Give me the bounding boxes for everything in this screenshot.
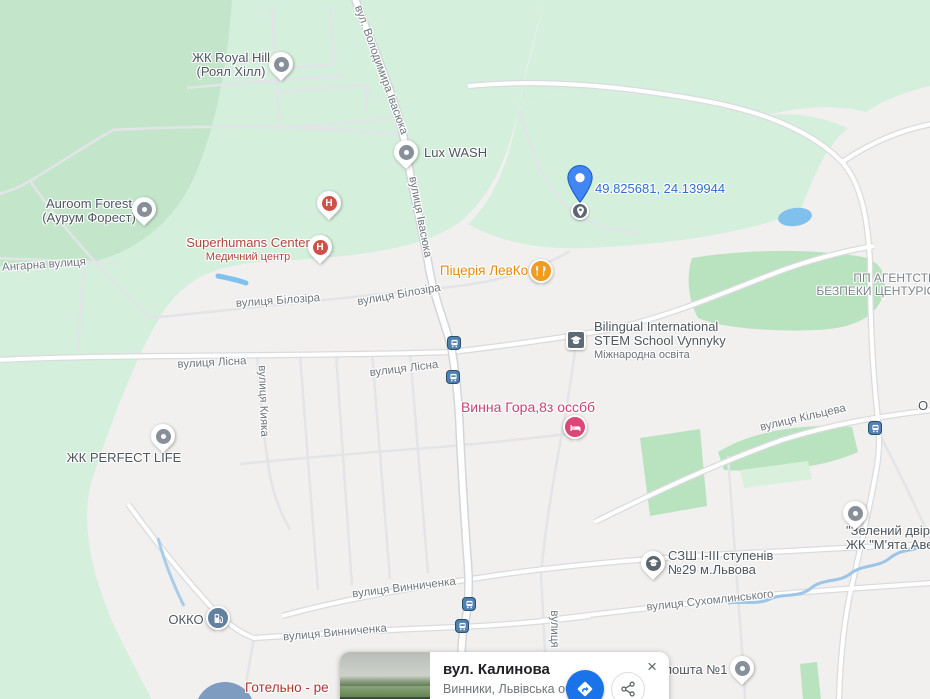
hotel-bed-icon (563, 415, 587, 439)
poi-label-hotel-partial[interactable]: Готельно - ре (245, 681, 329, 695)
street-view-thumbnail[interactable]: Перегляд (340, 652, 430, 699)
place-info-card: Перегляд вул. Калинова Винники, Львівськ… (340, 652, 669, 699)
poi-label-superhumans[interactable]: Superhumans Center Медичний центр (186, 236, 310, 264)
graduation-cap-icon (566, 330, 586, 350)
close-icon[interactable]: × (643, 654, 661, 679)
poi-label-perfect-life[interactable]: ЖК PERFECT LIFE (67, 451, 182, 465)
poi-label-auroom-forest[interactable]: Auroom Forest (Аурум Форест) (42, 197, 136, 225)
street-label-partial-vertical: вулиця (548, 610, 560, 647)
poi-label-vynna-hora[interactable]: Винна Гора,8з оссбб (461, 400, 595, 414)
bus-icon (868, 421, 882, 435)
bus-icon (462, 597, 476, 611)
bus-icon (446, 370, 460, 384)
thumbnail-treeline (340, 676, 430, 686)
map-base-layer (0, 0, 930, 699)
fuel-pump-icon (206, 606, 230, 630)
poi-label-lux-wash[interactable]: Lux WASH (424, 146, 487, 160)
poi-label-zelenyi-dvir[interactable]: "Зелений двір" ЖК "М'ята Аве (846, 524, 930, 552)
bus-icon (447, 336, 461, 350)
graduation-cap-icon (646, 556, 661, 571)
street-label-kyiaka: вулиця Кияка (256, 365, 270, 437)
pin-dot (399, 145, 414, 160)
pin-dot (274, 57, 289, 72)
pin-dot (735, 661, 750, 676)
pin-dot (156, 429, 171, 444)
pin-dot (137, 202, 152, 217)
poi-label-szsh-29[interactable]: СЗШ І-ІІІ ступенів №29 м.Львова (668, 549, 773, 577)
directions-diamond-icon (574, 678, 596, 699)
share-icon (619, 680, 637, 698)
poi-label-stem-school[interactable]: Bilingual International STEM School Vynn… (594, 320, 726, 362)
poi-label-royal-hill[interactable]: ЖК Royal Hill (Роял Хілл) (192, 51, 270, 79)
bus-icon (455, 619, 469, 633)
area-label-agency: ПП АГЕНТСТВ БЕЗПЕКИ ЦЕНТУРІО (790, 272, 930, 298)
hospital-icon: H (322, 196, 337, 211)
destination-coordinates-label: 49.825681, 24.139944 (595, 181, 725, 196)
dropped-pin-icon (567, 165, 593, 203)
poi-label-okko[interactable]: ОККО (168, 613, 203, 627)
poi-label-partial-o[interactable]: О (918, 399, 928, 413)
pin-dot (848, 506, 863, 521)
hospital-icon: H (313, 240, 328, 255)
restaurant-icon (529, 259, 553, 283)
poi-label-poshta[interactable]: пошта №1 (665, 663, 728, 677)
share-button[interactable] (611, 672, 645, 699)
location-pin-icon (571, 202, 589, 220)
poi-label-pizzeria-levko[interactable]: Піцерія ЛевКо (440, 264, 528, 278)
google-maps-canvas[interactable]: вул. Володимира Івасюка вулиця Івасюка А… (0, 0, 930, 699)
